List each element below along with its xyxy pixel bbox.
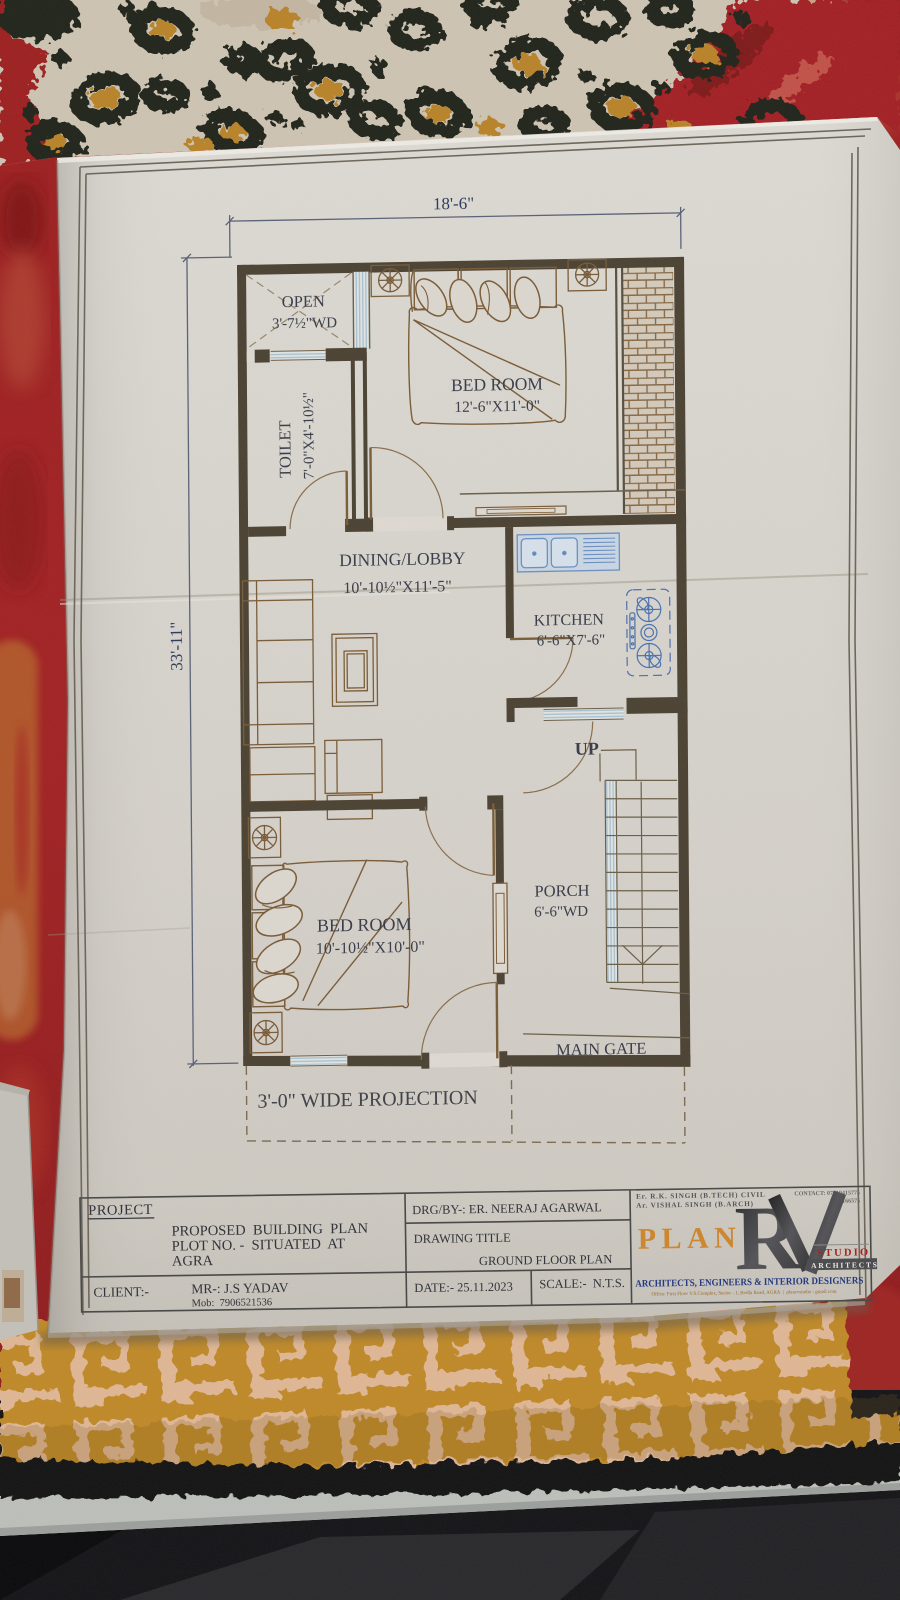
svg-text:SCALE:- N.T.S.: SCALE:- N.T.S. (539, 1276, 625, 1291)
svg-text:CLIENT:-: CLIENT:- (93, 1284, 149, 1300)
svg-text:Mob: 7906521536: Mob: 7906521536 (192, 1297, 273, 1309)
svg-text:DRG/BY-: ER. NEERAJ AGARWAL: DRG/BY-: ER. NEERAJ AGARWAL (412, 1200, 602, 1217)
svg-text:GROUND FLOOR PLAN: GROUND FLOOR PLAN (479, 1252, 613, 1268)
svg-text:ARCHITECTS: ARCHITECTS (811, 1260, 879, 1270)
svg-text:PROJECT: PROJECT (88, 1202, 153, 1219)
svg-text:DRAWING TITLE: DRAWING TITLE (414, 1231, 512, 1246)
svg-text:DATE:- 25.11.2023: DATE:- 25.11.2023 (414, 1280, 513, 1295)
svg-text:PLAN: PLAN (637, 1221, 741, 1256)
svg-text:PLOT NO. - SITUATED AT: PLOT NO. - SITUATED AT (172, 1236, 346, 1255)
svg-text:AGRA: AGRA (172, 1253, 214, 1270)
svg-text:MR-: J.S YADAV: MR-: J.S YADAV (191, 1280, 289, 1296)
svg-text:STUDIO: STUDIO (817, 1247, 871, 1259)
svg-text:CONTACT: 07519415775: CONTACT: 07519415775 (794, 1190, 860, 1197)
